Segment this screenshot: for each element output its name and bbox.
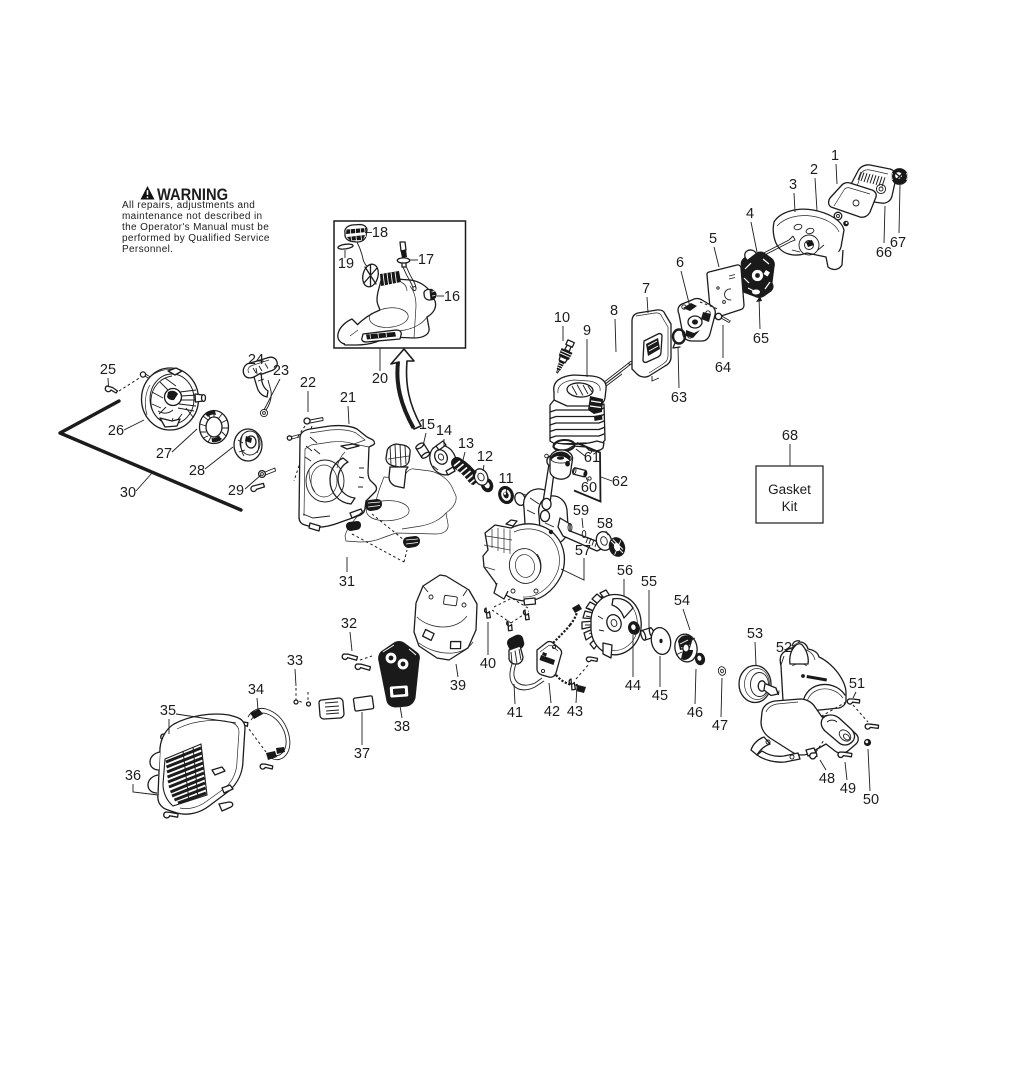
svg-text:65: 65 [753, 331, 769, 347]
svg-text:12: 12 [477, 449, 493, 465]
svg-text:43: 43 [567, 704, 583, 720]
svg-text:62: 62 [612, 474, 628, 490]
svg-text:28: 28 [189, 463, 205, 479]
svg-text:14: 14 [436, 423, 452, 439]
svg-text:32: 32 [341, 616, 357, 632]
svg-text:30: 30 [120, 485, 136, 501]
svg-text:46: 46 [687, 705, 703, 721]
svg-text:58: 58 [597, 516, 613, 532]
svg-text:53: 53 [747, 626, 763, 642]
svg-text:55: 55 [641, 574, 657, 590]
svg-text:40: 40 [480, 656, 496, 672]
svg-text:20: 20 [372, 371, 388, 387]
svg-text:35: 35 [160, 703, 176, 719]
svg-text:37: 37 [354, 746, 370, 762]
svg-text:maintenance not described in: maintenance not described in [122, 211, 262, 222]
svg-text:21: 21 [340, 390, 356, 406]
svg-text:2: 2 [810, 162, 818, 178]
svg-text:60: 60 [581, 480, 597, 496]
svg-text:41: 41 [507, 705, 523, 721]
svg-text:19: 19 [338, 256, 354, 272]
svg-text:47: 47 [712, 718, 728, 734]
svg-text:5: 5 [709, 231, 717, 247]
svg-text:All repairs, adjustments and: All repairs, adjustments and [122, 200, 255, 211]
svg-text:45: 45 [652, 688, 668, 704]
svg-text:Personnel.: Personnel. [122, 244, 173, 255]
svg-text:29: 29 [228, 483, 244, 499]
svg-text:3: 3 [789, 177, 797, 193]
svg-text:the Operator's Manual must be: the Operator's Manual must be [122, 222, 269, 233]
svg-text:38: 38 [394, 719, 410, 735]
svg-text:42: 42 [544, 704, 560, 720]
svg-text:27: 27 [156, 446, 172, 462]
svg-text:49: 49 [840, 781, 856, 797]
svg-text:61: 61 [584, 450, 600, 466]
svg-text:1: 1 [831, 148, 839, 164]
svg-text:25: 25 [100, 362, 116, 378]
svg-text:56: 56 [617, 563, 633, 579]
svg-text:68: 68 [782, 428, 798, 444]
svg-text:13: 13 [458, 436, 474, 452]
svg-text:Gasket: Gasket [768, 482, 811, 497]
svg-text:50: 50 [863, 792, 879, 808]
svg-text:39: 39 [450, 678, 466, 694]
svg-text:34: 34 [248, 682, 264, 698]
svg-text:57: 57 [575, 543, 591, 559]
svg-text:17: 17 [418, 252, 434, 268]
svg-text:44: 44 [625, 678, 641, 694]
svg-text:15: 15 [419, 417, 435, 433]
svg-text:11: 11 [498, 471, 513, 487]
svg-text:9: 9 [583, 323, 591, 339]
svg-text:54: 54 [674, 593, 690, 609]
svg-text:8: 8 [610, 303, 618, 319]
svg-text:59: 59 [573, 503, 589, 519]
svg-text:6: 6 [676, 255, 684, 271]
svg-text:performed by Qualified Service: performed by Qualified Service [122, 233, 270, 244]
svg-text:26: 26 [108, 423, 124, 439]
svg-text:22: 22 [300, 375, 316, 391]
svg-text:36: 36 [125, 768, 141, 784]
svg-text:24: 24 [248, 352, 264, 368]
svg-text:16: 16 [444, 289, 460, 305]
svg-text:10: 10 [554, 310, 570, 326]
svg-text:33: 33 [287, 653, 303, 669]
svg-text:4: 4 [746, 206, 754, 222]
svg-text:23: 23 [273, 363, 289, 379]
svg-text:67: 67 [890, 235, 906, 251]
svg-text:51: 51 [849, 676, 865, 692]
svg-text:31: 31 [339, 574, 355, 590]
svg-text:18: 18 [372, 225, 388, 241]
svg-text:48: 48 [819, 771, 835, 787]
svg-text:Kit: Kit [782, 499, 798, 514]
svg-text:64: 64 [715, 360, 731, 376]
svg-text:63: 63 [671, 390, 687, 406]
svg-text:52: 52 [776, 640, 792, 656]
svg-text:7: 7 [642, 281, 650, 297]
